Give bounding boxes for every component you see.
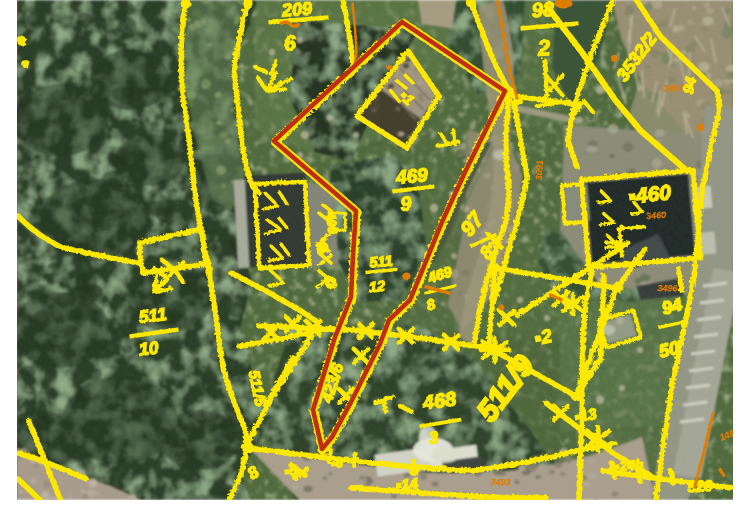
svg-text:6: 6 (283, 32, 297, 56)
svg-text:511: 511 (137, 303, 167, 326)
svg-text:469: 469 (394, 165, 429, 189)
svg-text:98: 98 (531, 0, 556, 22)
svg-text:▪460: ▪460 (627, 181, 672, 208)
svg-text:3497: 3497 (663, 83, 684, 93)
svg-text:3460: 3460 (645, 209, 666, 221)
svg-text:10: 10 (137, 337, 159, 359)
svg-text:528: 528 (687, 477, 714, 496)
svg-text:▪24h: ▪24h (614, 456, 644, 474)
svg-text:2: 2 (535, 35, 551, 61)
svg-text:3496: 3496 (657, 283, 678, 293)
svg-text:3091: 3091 (533, 160, 544, 181)
svg-text:409: 409 (323, 210, 340, 235)
svg-text:▪14: ▪14 (395, 475, 419, 494)
svg-text:12: 12 (368, 278, 385, 295)
svg-text:3493: 3493 (490, 477, 510, 487)
